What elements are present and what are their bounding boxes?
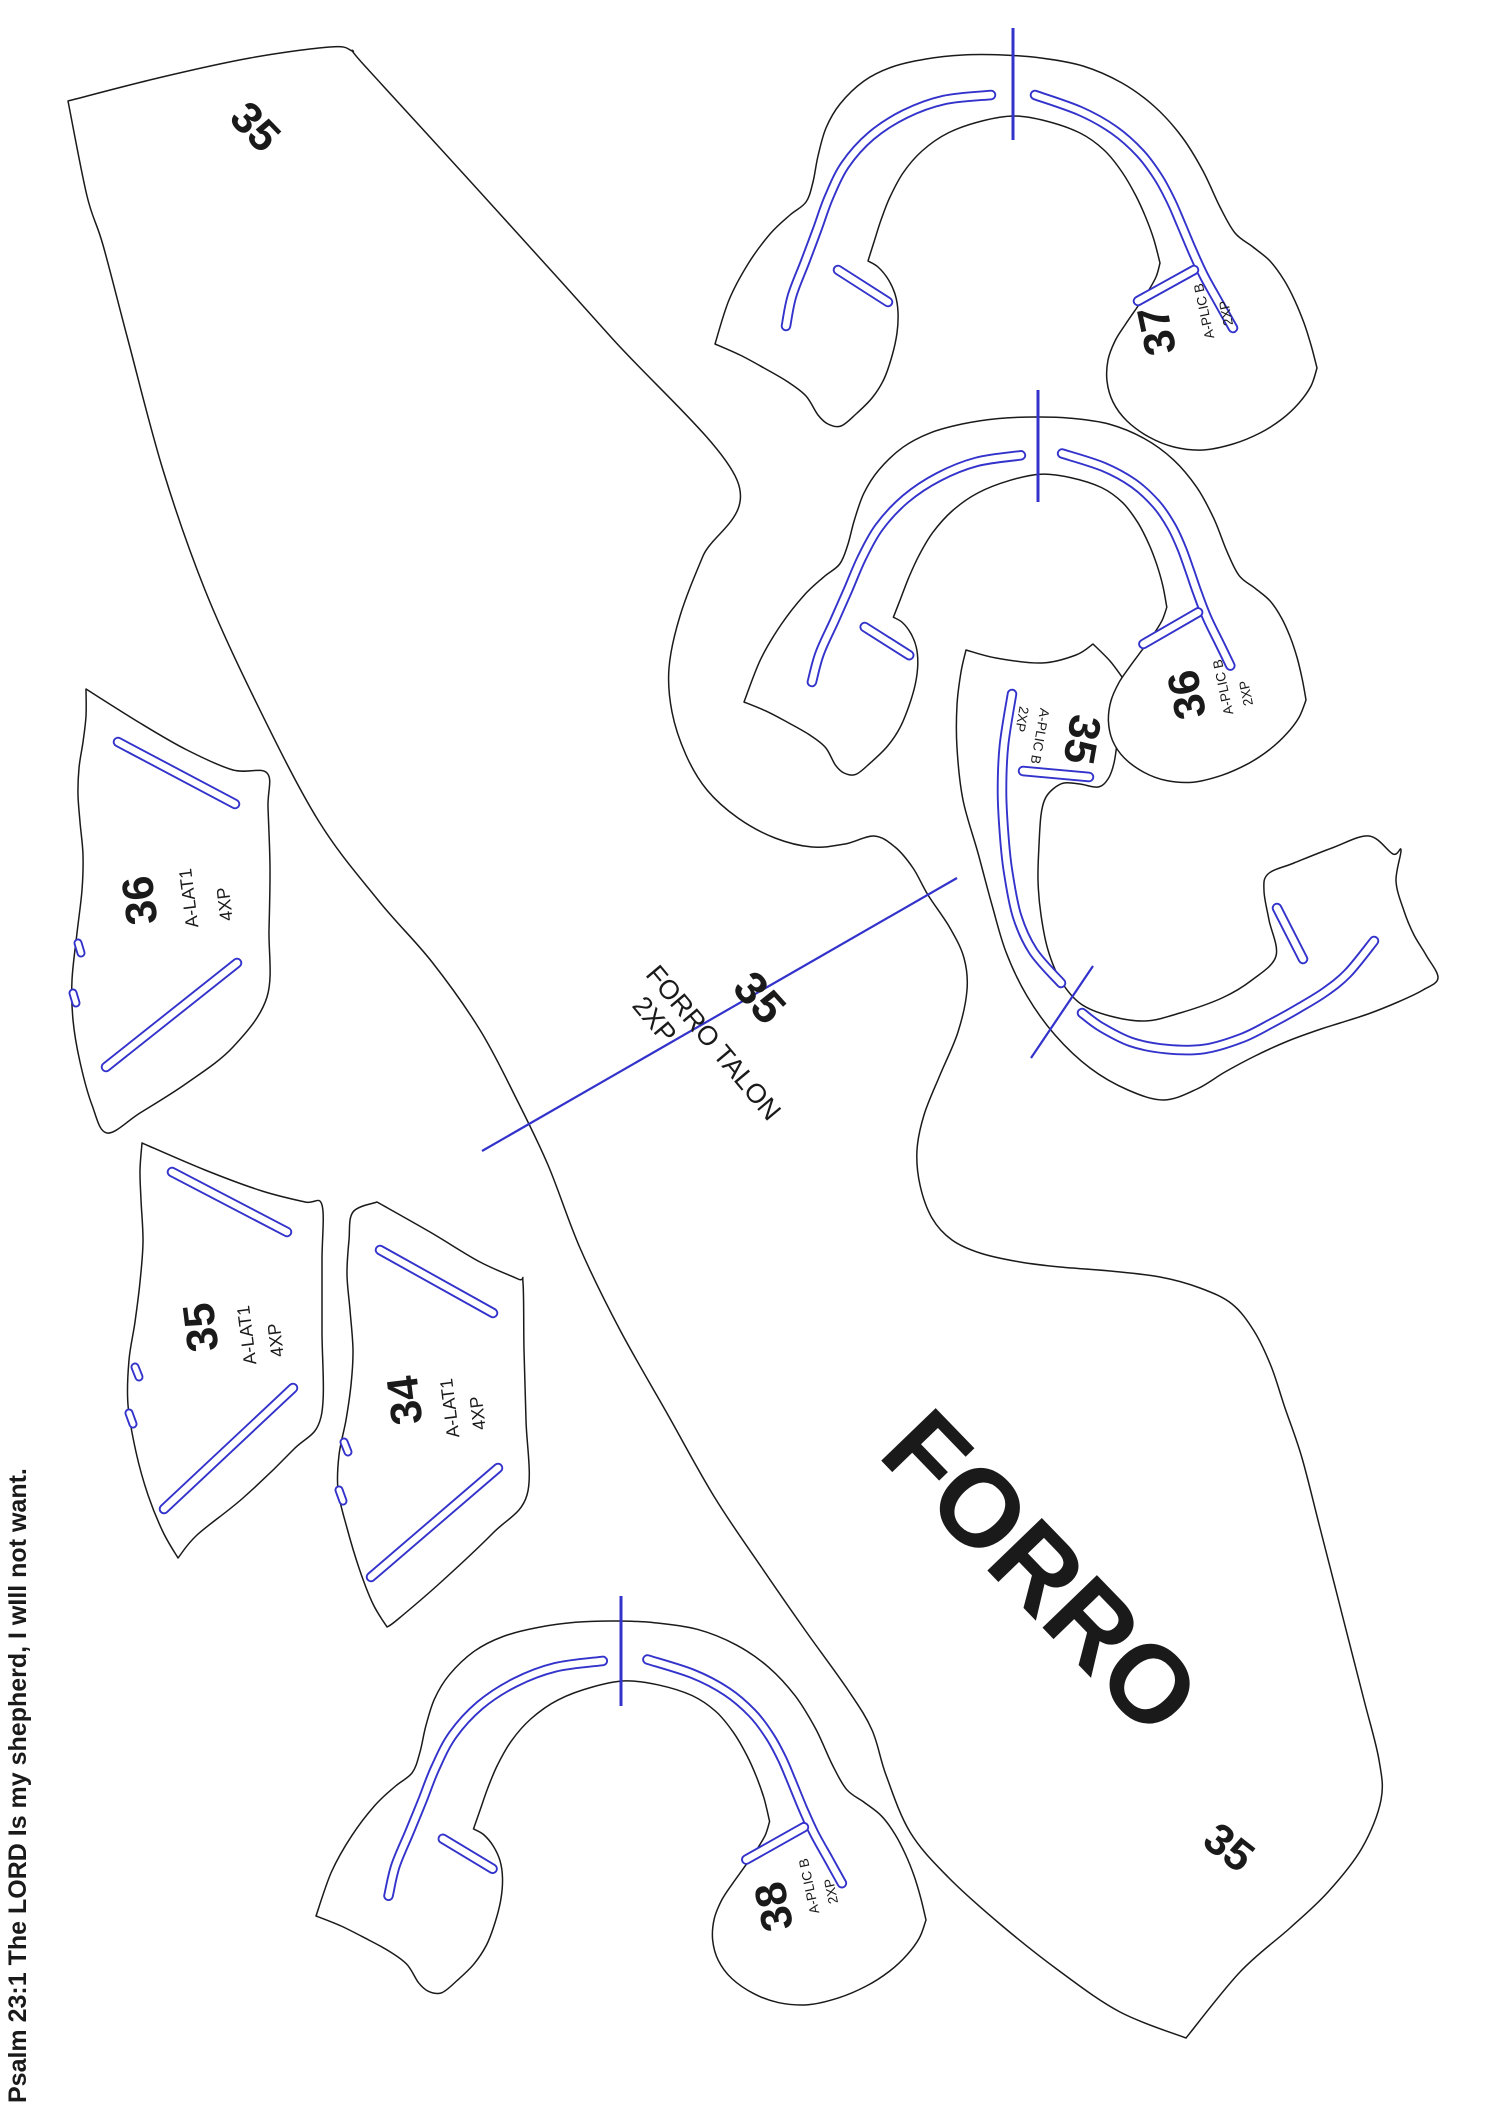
svg-text:35: 35 (174, 1300, 229, 1355)
svg-text:4XP: 4XP (264, 1322, 288, 1358)
svg-text:37: 37 (1128, 302, 1186, 360)
svg-text:4XP: 4XP (466, 1395, 490, 1431)
svg-text:35: 35 (1053, 711, 1110, 768)
svg-text:4XP: 4XP (213, 886, 237, 922)
svg-text:34: 34 (378, 1373, 433, 1428)
svg-text:38: 38 (745, 1878, 803, 1936)
svg-text:36: 36 (113, 873, 168, 928)
svg-text:36: 36 (1158, 666, 1216, 724)
svg-text:Psalm 23:1 The LORD Is my shep: Psalm 23:1 The LORD Is my shepherd, I wI… (4, 1468, 32, 2103)
